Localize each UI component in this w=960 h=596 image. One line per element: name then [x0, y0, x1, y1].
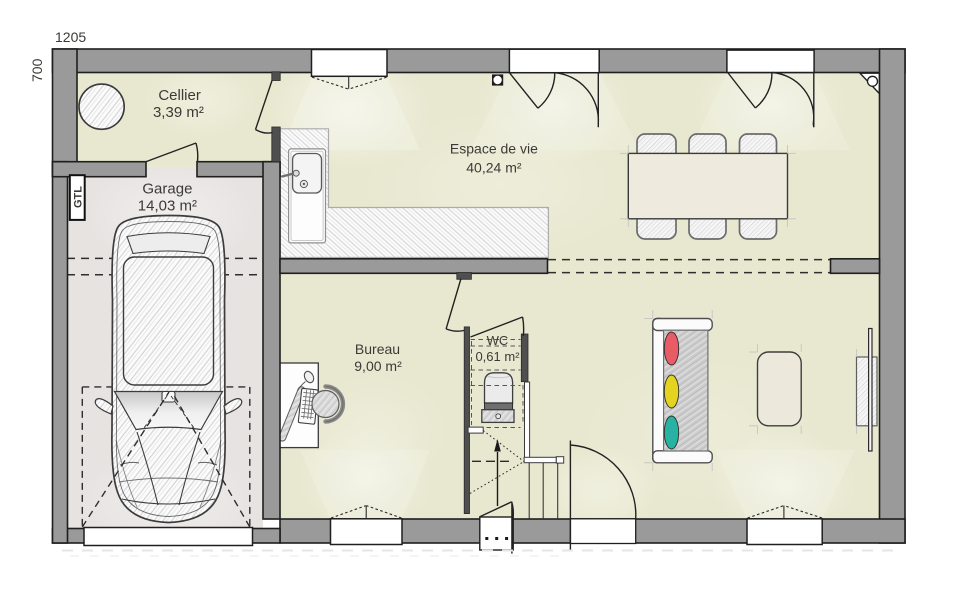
svg-text:Bureau: Bureau — [355, 341, 400, 357]
svg-text:14,03 m²: 14,03 m² — [138, 198, 197, 215]
svg-text:700: 700 — [29, 58, 45, 82]
svg-text:3,39 m²: 3,39 m² — [153, 104, 204, 121]
svg-text:Espace de vie: Espace de vie — [450, 141, 538, 157]
svg-text:WC: WC — [487, 333, 509, 348]
svg-text:0,61 m²: 0,61 m² — [475, 349, 520, 364]
svg-text:Garage: Garage — [142, 181, 192, 198]
svg-text:1205: 1205 — [55, 29, 86, 45]
svg-text:40,24 m²: 40,24 m² — [466, 160, 522, 176]
svg-text:GTL: GTL — [73, 186, 85, 208]
svg-text:9,00 m²: 9,00 m² — [354, 358, 402, 374]
svg-text:Cellier: Cellier — [158, 87, 201, 104]
